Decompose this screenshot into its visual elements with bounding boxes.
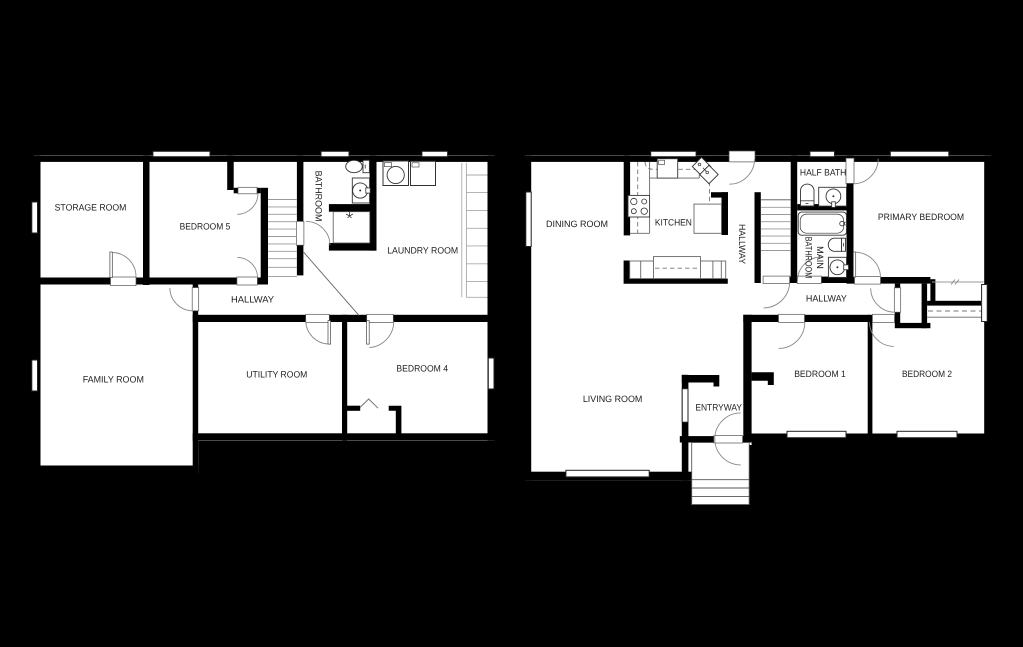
svg-text:MAIN: MAIN [815, 246, 825, 269]
svg-text:BATHROOM: BATHROOM [804, 237, 814, 279]
svg-text:BEDROOM 1: BEDROOM 1 [794, 369, 846, 379]
svg-text:UTILITY ROOM: UTILITY ROOM [246, 370, 307, 380]
svg-text:LIVING ROOM: LIVING ROOM [583, 394, 643, 404]
svg-text:KITCHEN: KITCHEN [655, 218, 692, 228]
svg-text:BEDROOM 2: BEDROOM 2 [902, 369, 952, 379]
svg-text:BEDROOM 5: BEDROOM 5 [180, 222, 231, 232]
svg-text:BATHROOM: BATHROOM [314, 171, 324, 222]
svg-text:FAMILY ROOM: FAMILY ROOM [83, 374, 144, 384]
svg-text:DINING ROOM: DINING ROOM [546, 219, 608, 229]
svg-text:HALF BATH: HALF BATH [800, 168, 846, 178]
svg-text:STORAGE ROOM: STORAGE ROOM [55, 202, 127, 212]
svg-text:HALLWAY: HALLWAY [737, 224, 747, 264]
svg-text:LAUNDRY ROOM: LAUNDRY ROOM [387, 245, 458, 255]
svg-text:PRIMARY BEDROOM: PRIMARY BEDROOM [878, 212, 964, 222]
svg-text:BEDROOM 4: BEDROOM 4 [396, 364, 448, 374]
svg-text:HALLWAY: HALLWAY [231, 295, 274, 305]
svg-text:HALLWAY: HALLWAY [806, 293, 847, 303]
svg-text:ENTRYWAY: ENTRYWAY [695, 403, 742, 413]
